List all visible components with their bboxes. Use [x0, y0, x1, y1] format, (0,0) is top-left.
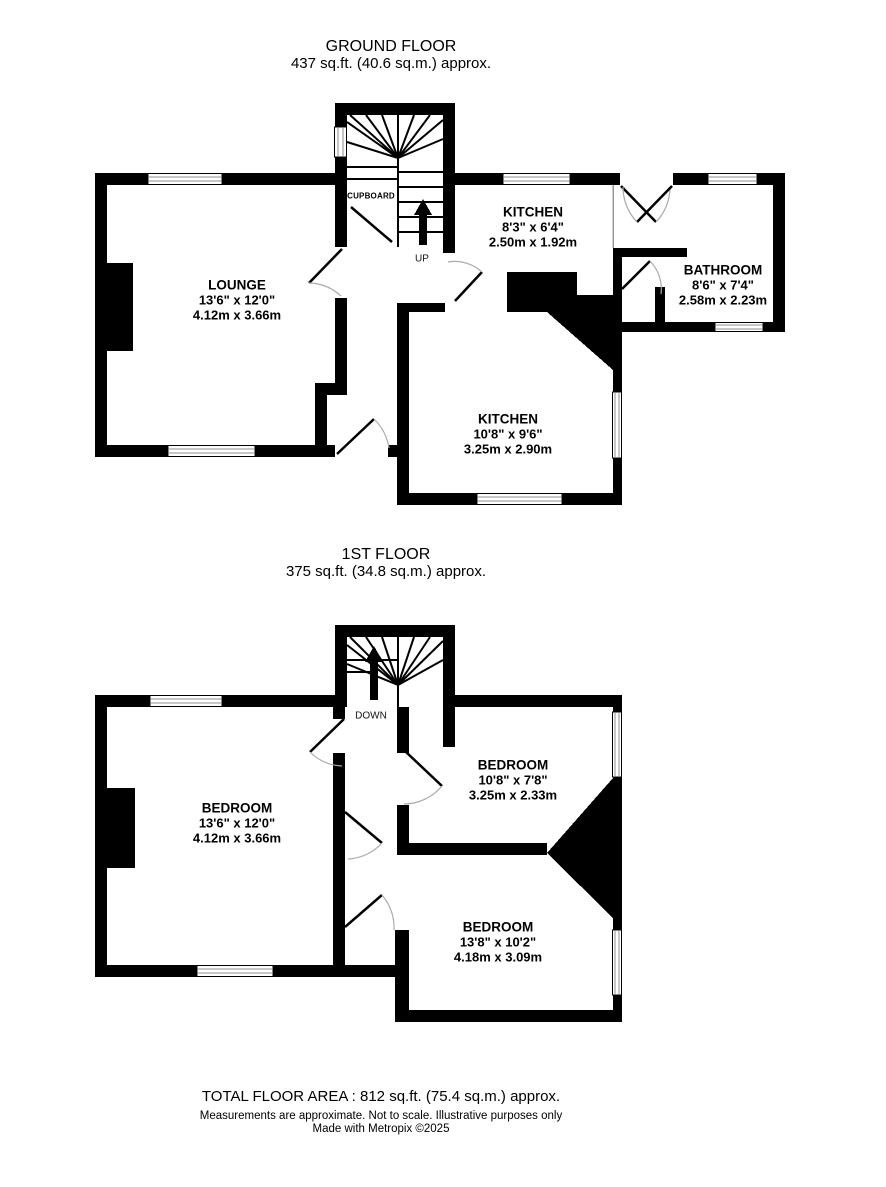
- ground-floor-area: 437 sq.ft. (40.6 sq.m.) approx.: [291, 55, 491, 72]
- room-name: BEDROOM: [193, 801, 281, 816]
- room-dim-metric: 4.18m x 3.09m: [454, 950, 542, 965]
- room-dim-metric: 3.25m x 2.90m: [464, 442, 552, 457]
- stairs-up: [347, 115, 443, 247]
- first-floor-title-block: 1ST FLOOR 375 sq.ft. (34.8 sq.m.) approx…: [286, 546, 486, 580]
- room-name: BEDROOM: [469, 758, 557, 773]
- ground-floor-title-block: GROUND FLOOR 437 sq.ft. (40.6 sq.m.) app…: [291, 38, 491, 72]
- total-floor-area: TOTAL FLOOR AREA : 812 sq.ft. (75.4 sq.m…: [200, 1088, 562, 1106]
- room-dim-imperial: 13'8" x 10'2": [454, 935, 542, 950]
- first-floor-doors: [310, 719, 442, 930]
- room-label-kitchen-top: KITCHEN 8'3" x 6'4" 2.50m x 1.92m: [489, 205, 577, 250]
- room-dim-imperial: 8'6" x 7'4": [679, 278, 767, 293]
- room-name: BATHROOM: [679, 263, 767, 278]
- room-dim-metric: 4.12m x 3.66m: [193, 308, 281, 323]
- room-dim-imperial: 10'8" x 7'8": [469, 773, 557, 788]
- room-label-bedroom-bottom: BEDROOM 13'8" x 10'2" 4.18m x 3.09m: [454, 920, 542, 965]
- ground-floor-title: GROUND FLOOR: [291, 38, 491, 55]
- room-dim-imperial: 13'6" x 12'0": [193, 293, 281, 308]
- credit-text: Made with Metropix ©2025: [200, 1123, 562, 1136]
- room-dim-metric: 2.58m x 2.23m: [679, 293, 767, 308]
- room-dim-metric: 2.50m x 1.92m: [489, 235, 577, 250]
- up-label: UP: [415, 254, 429, 265]
- stairs-down: [347, 637, 443, 707]
- room-label-lounge: LOUNGE 13'6" x 12'0" 4.12m x 3.66m: [193, 278, 281, 323]
- floorplan-drawing: [0, 0, 886, 1187]
- down-label: DOWN: [355, 711, 387, 722]
- room-dim-imperial: 10'8" x 9'6": [464, 427, 552, 442]
- room-dim-imperial: 13'6" x 12'0": [193, 816, 281, 831]
- room-dim-metric: 4.12m x 3.66m: [193, 831, 281, 846]
- disclaimer-text: Measurements are approximate. Not to sca…: [200, 1110, 562, 1123]
- room-label-bathroom: BATHROOM 8'6" x 7'4" 2.58m x 2.23m: [679, 263, 767, 308]
- footer-block: TOTAL FLOOR AREA : 812 sq.ft. (75.4 sq.m…: [200, 1088, 562, 1136]
- room-dim-imperial: 8'3" x 6'4": [489, 220, 577, 235]
- room-label-kitchen-main: KITCHEN 10'8" x 9'6" 3.25m x 2.90m: [464, 412, 552, 457]
- floorplan-page: GROUND FLOOR 437 sq.ft. (40.6 sq.m.) app…: [0, 0, 886, 1187]
- up-arrow-icon: [414, 199, 432, 245]
- room-label-bedroom-right: BEDROOM 10'8" x 7'8" 3.25m x 2.33m: [469, 758, 557, 803]
- room-name: KITCHEN: [489, 205, 577, 220]
- first-floor-title: 1ST FLOOR: [286, 546, 486, 563]
- room-name: LOUNGE: [193, 278, 281, 293]
- room-dim-metric: 3.25m x 2.33m: [469, 788, 557, 803]
- cupboard-label: CUPBOARD: [347, 192, 395, 201]
- room-label-bedroom-left: BEDROOM 13'6" x 12'0" 4.12m x 3.66m: [193, 801, 281, 846]
- first-floor-area: 375 sq.ft. (34.8 sq.m.) approx.: [286, 563, 486, 580]
- room-name: BEDROOM: [454, 920, 542, 935]
- room-name: KITCHEN: [464, 412, 552, 427]
- first-floor-plan: [95, 625, 622, 1022]
